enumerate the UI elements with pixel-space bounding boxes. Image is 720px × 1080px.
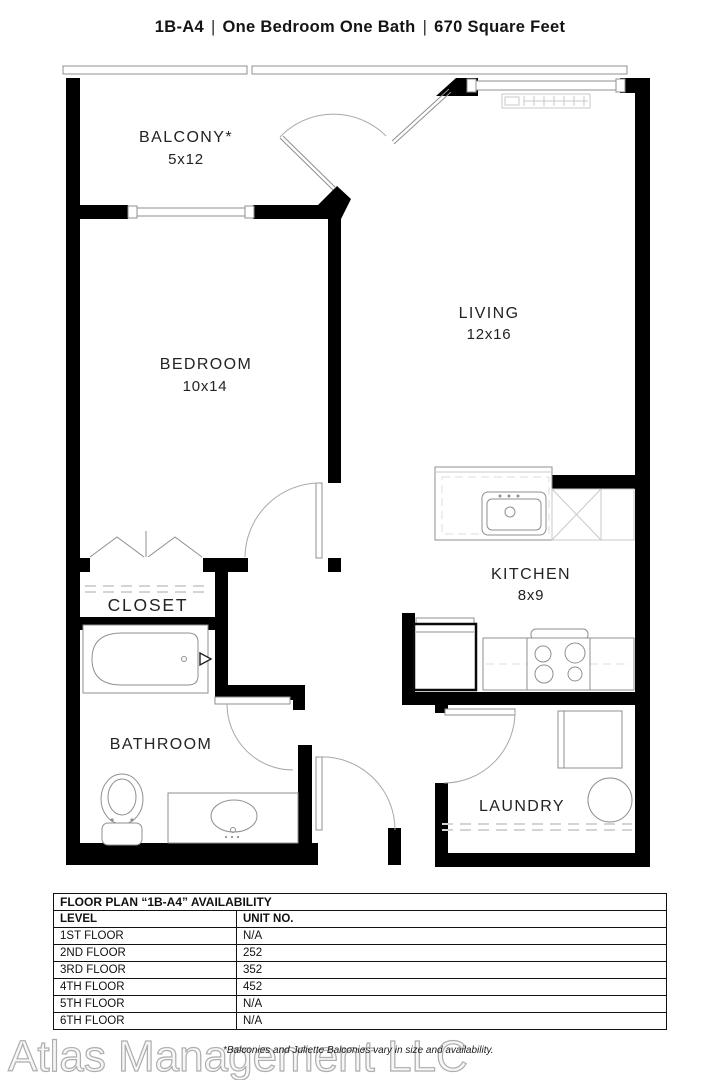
level-cell: 5TH FLOOR [54,996,237,1013]
unit-cell: N/A [237,928,667,945]
table-row: 5TH FLOOR N/A [54,996,667,1013]
dishwasher-box [552,489,634,540]
unit-cell: N/A [237,996,667,1013]
bedroom-window [128,206,254,218]
table-row: 3RD FLOOR 352 [54,962,667,979]
laundry-shelf-dashes [442,824,632,830]
column-header-unit: UNIT NO. [237,911,667,928]
room-label-closet: CLOSET [108,595,189,615]
room-label-bathroom: BATHROOM [110,736,212,753]
vanity-sink [168,793,298,843]
closet-shelf-dashes [85,586,210,592]
toilet [101,774,143,845]
room-dims-living: 12x16 [467,326,512,343]
closet-bifold-doors [90,531,202,557]
table-row: 1ST FLOOR N/A [54,928,667,945]
table-row: 6TH FLOOR N/A [54,1013,667,1030]
unit-cell: 452 [237,979,667,996]
level-cell: 1ST FLOOR [54,928,237,945]
room-dims-bedroom: 10x14 [183,378,228,395]
availability-header-row: LEVEL UNIT NO. [54,911,667,928]
bedroom-door [245,483,322,558]
bathroom-door [215,697,293,770]
unit-cell: N/A [237,1013,667,1030]
level-cell: 4TH FLOOR [54,979,237,996]
unit-cell: 252 [237,945,667,962]
entry-door [316,757,395,830]
balcony-railing [63,66,627,74]
table-row: 2ND FLOOR 252 [54,945,667,962]
baseboard-heater [502,94,590,108]
room-label-balcony: BALCONY* [139,129,233,146]
room-label-bedroom: BEDROOM [160,356,252,373]
stove [527,629,590,690]
column-header-level: LEVEL [54,911,237,928]
level-cell: 2ND FLOOR [54,945,237,962]
bathtub [83,625,211,693]
balcony-door [280,89,451,190]
laundry-door [444,709,515,783]
availability-title: FLOOR PLAN “1B-A4” AVAILABILITY [54,894,667,911]
availability-title-row: FLOOR PLAN “1B-A4” AVAILABILITY [54,894,667,911]
unit-cell: 352 [237,962,667,979]
level-cell: 6TH FLOOR [54,1013,237,1030]
living-window [467,79,625,92]
room-label-kitchen: KITCHEN [491,566,571,583]
availability-table: FLOOR PLAN “1B-A4” AVAILABILITY LEVEL UN… [53,893,667,1030]
room-dims-balcony: 5x12 [168,151,204,168]
company-watermark: Atlas Management LLC [8,1032,468,1080]
room-label-living: LIVING [459,305,520,322]
floor-plan-page: 1B-A4|One Bedroom One Bath|670 Square Fe… [0,0,720,1080]
level-cell: 3RD FLOOR [54,962,237,979]
room-label-laundry: LAUNDRY [479,798,565,815]
washer [558,711,622,768]
refrigerator [414,618,476,690]
table-row: 4TH FLOOR 452 [54,979,667,996]
room-dims-kitchen: 8x9 [518,587,545,604]
balcony-disclaimer: *Balconies and Juliette Balconies vary i… [223,1045,494,1056]
dryer [588,778,632,822]
kitchen-counter-sink [435,467,552,540]
